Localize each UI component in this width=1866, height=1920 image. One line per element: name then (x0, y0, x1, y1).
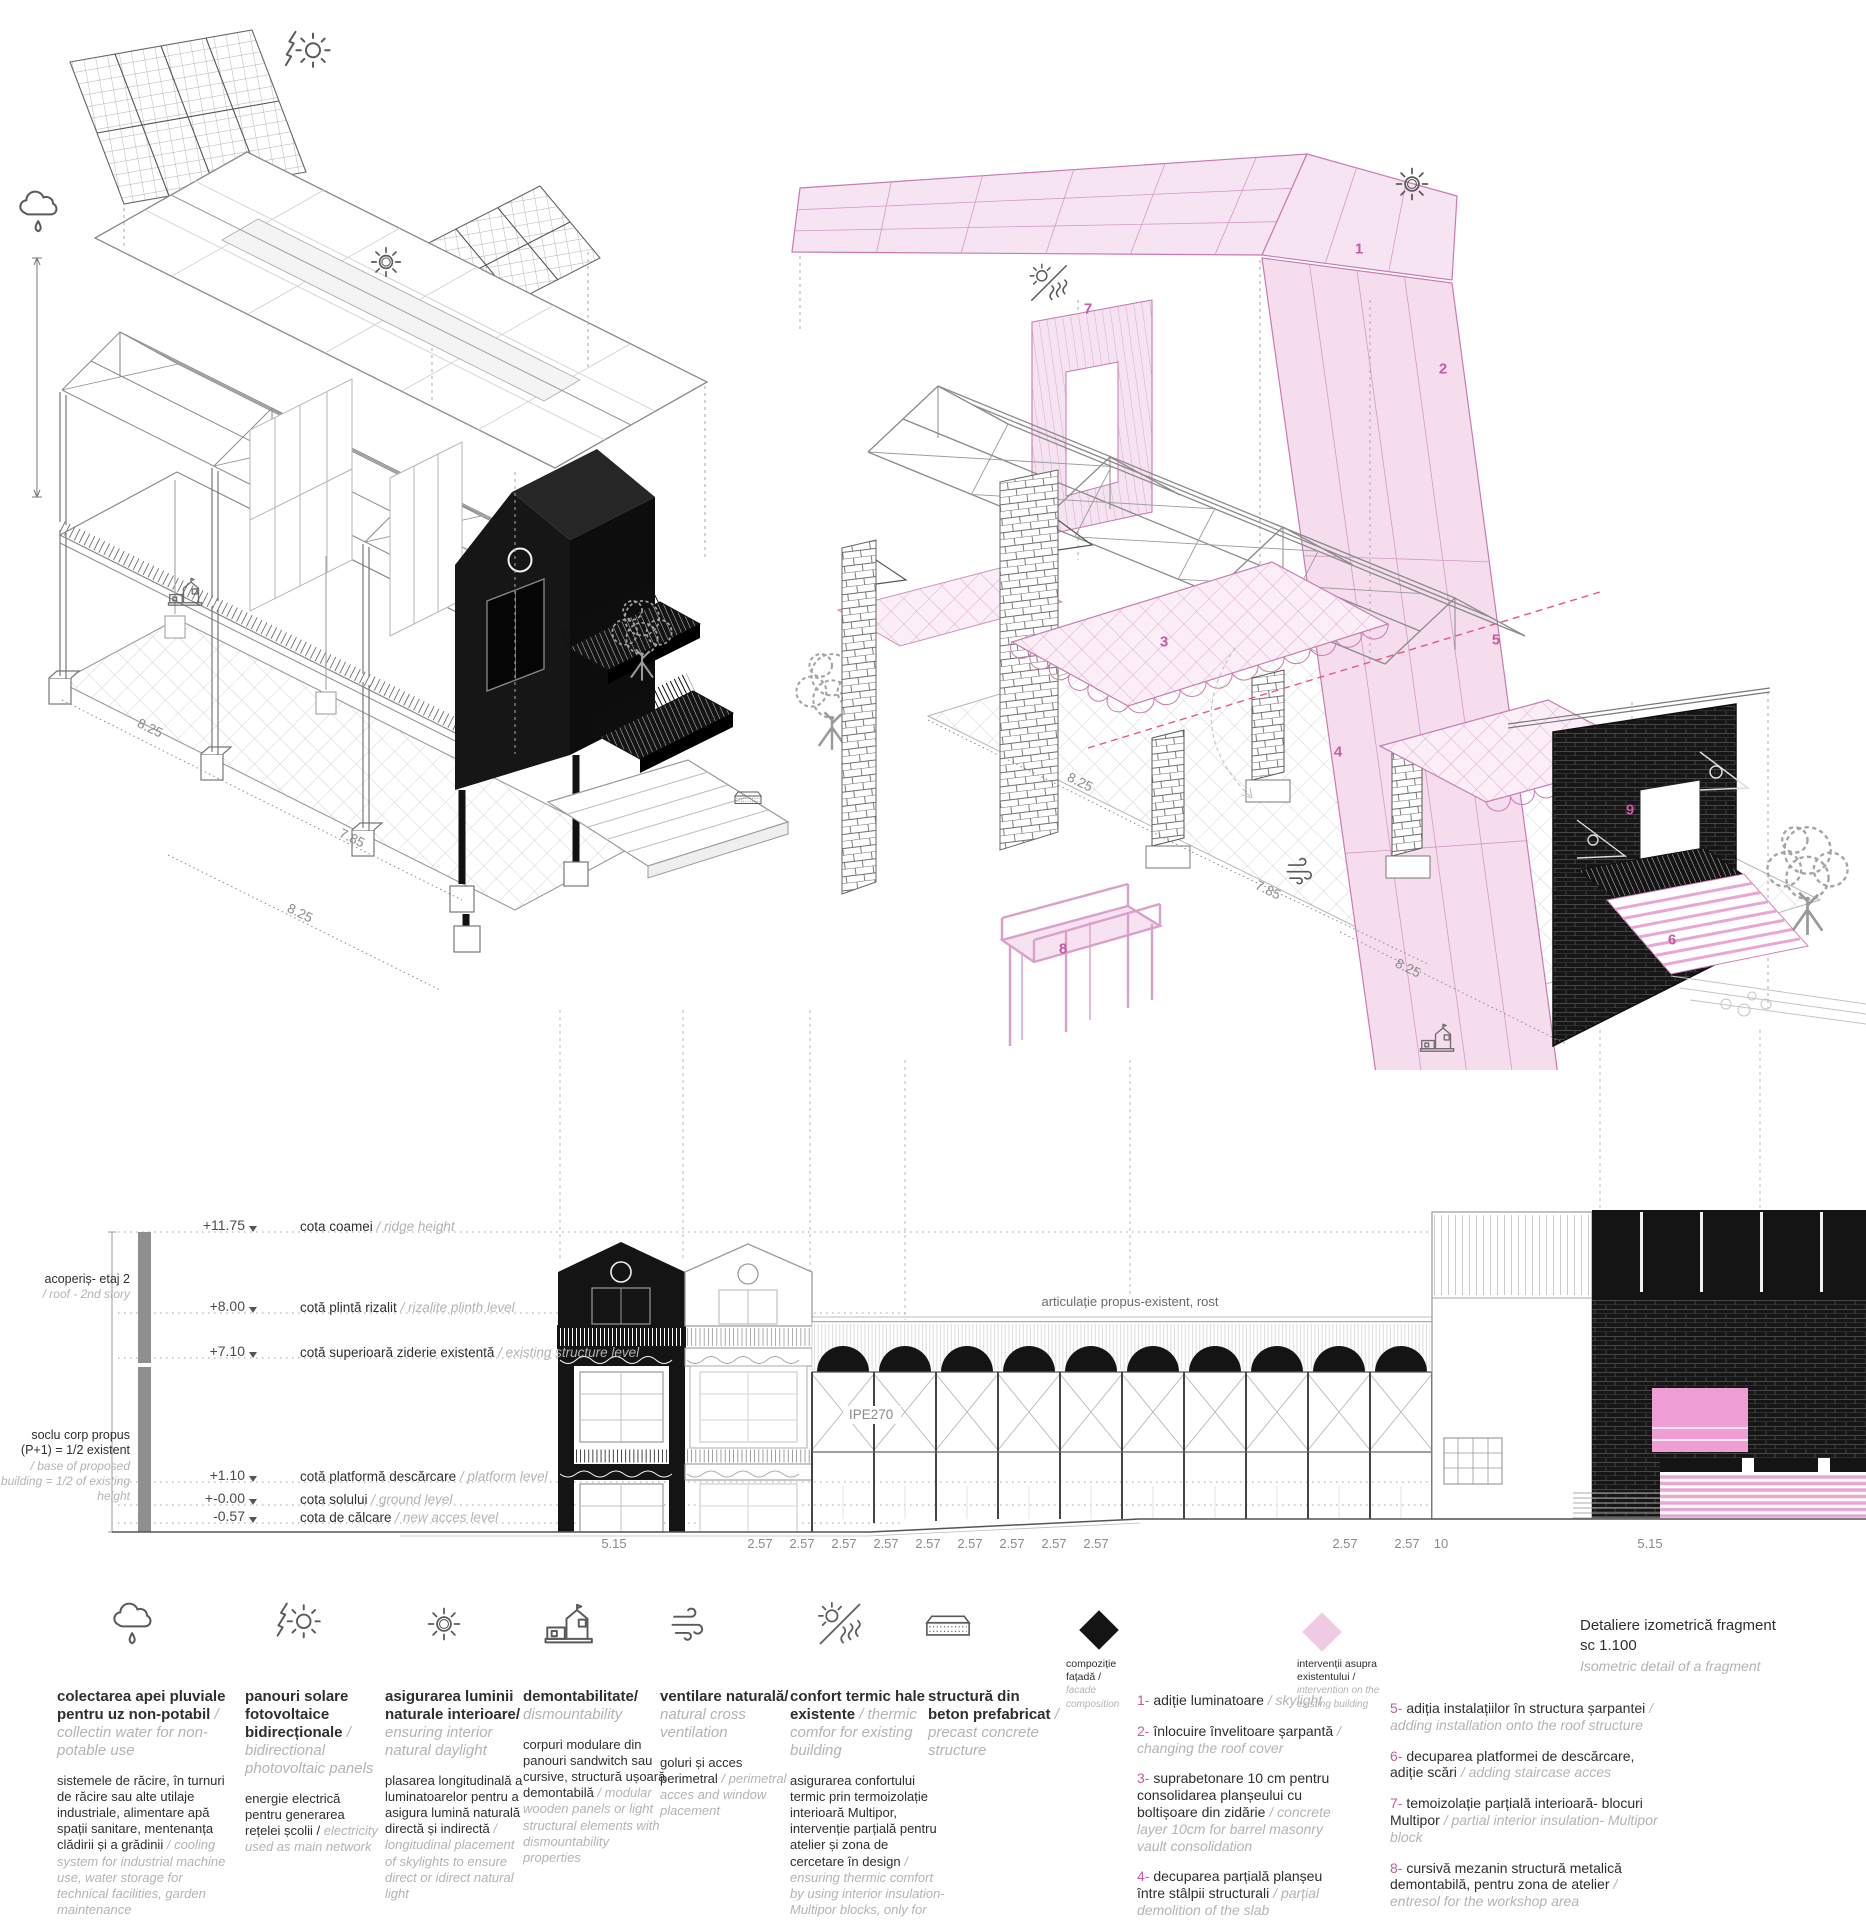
dim-label: 2.57 (1083, 1536, 1108, 1551)
intervention-number-5: 5 (1492, 632, 1500, 649)
intervention-number-7: 7 (1084, 301, 1092, 318)
left-isometric-drawing (0, 0, 900, 1010)
legend-item-rainwater: colectarea apei pluviale pentru uz non-p… (57, 1688, 227, 1918)
dim-label: 2.57 (957, 1536, 982, 1551)
drawing-scale: sc 1.100 (1580, 1636, 1860, 1656)
legend-item-daylight: asigurarea luminii naturale interioare/ … (385, 1688, 525, 1902)
legend-item-dismountability: demontabilitate/ dismountability corpuri… (523, 1688, 668, 1866)
intervention-item: 1- adiție luminatoare / skylight (1137, 1692, 1342, 1709)
bolt-sun-icon (270, 1596, 324, 1650)
dim-label: 5.15 (1637, 1536, 1662, 1551)
black-house-elevation (558, 1242, 685, 1532)
black-building-elevation (1573, 1210, 1866, 1519)
right-isometric-drawing (780, 90, 1866, 1070)
intervention-number-8: 8 (1059, 941, 1067, 958)
intervention-item: 7- temoizolație parțială interioară- blo… (1390, 1795, 1665, 1845)
thermal-sun-icon (1030, 264, 1066, 300)
hall-elevation (812, 1317, 1432, 1532)
intervention-number-4: 4 (1334, 744, 1342, 761)
intervention-number-1: 1 (1355, 241, 1363, 258)
intervention-number-3: 3 (1160, 634, 1168, 651)
dim-label: 2.57 (831, 1536, 856, 1551)
intervention-item: 4- decuparea parțială planșeu între stâl… (1137, 1868, 1342, 1918)
intervention-item: 2- înlocuire învelitoare șarpantă / chan… (1137, 1723, 1342, 1757)
level-markers (249, 1226, 257, 1523)
dim-label: 2.57 (999, 1536, 1024, 1551)
dim-label: 2.57 (1041, 1536, 1066, 1551)
wind-icon (666, 1598, 718, 1650)
thermal-sun-icon (814, 1598, 866, 1650)
house-icon (542, 1596, 598, 1652)
legend-item-precast: structură din beton prefabricat / precas… (928, 1688, 1063, 1773)
legend-item-photovoltaic: panouri solare fotovoltaice bidirecționa… (245, 1688, 380, 1855)
drawing-title-en: Isometric detail of a fragment (1580, 1657, 1860, 1676)
story-bar-base (138, 1367, 151, 1532)
story-label-roof: acoperiș- etaj 2 / roof - 2nd story (0, 1272, 130, 1303)
level-value: +7.10 (185, 1343, 245, 1359)
facade-composition-diamond (1079, 1610, 1119, 1650)
drawing-title-block: Detaliere izometrică fragment sc 1.100 I… (1580, 1616, 1860, 1675)
intervention-number-9: 9 (1626, 802, 1634, 819)
beam-label: IPE270 (846, 1407, 896, 1422)
dim-label: 2.57 (789, 1536, 814, 1551)
sun-icon (418, 1598, 470, 1650)
intervention-item: 3- suprabetonare 10 cm pentru consolidar… (1137, 1770, 1342, 1854)
bolt-sun-icon (286, 32, 330, 67)
rain-cloud-icon (106, 1596, 160, 1650)
pink-striped-base (1660, 1472, 1866, 1519)
pink-doorway (1652, 1388, 1748, 1452)
intervention-item: 6- decuparea platformei de descărcare, a… (1390, 1748, 1665, 1782)
level-label: cotă plintă rizalit / rizalite plinth le… (300, 1300, 515, 1315)
dim-label: 2.57 (747, 1536, 772, 1551)
intervention-diamond (1302, 1612, 1342, 1652)
level-value: +11.75 (185, 1217, 245, 1233)
joint-label: articulație propus-existent, rost (1020, 1294, 1240, 1309)
story-label-base: soclu corp propus (P+1) = 1/2 existent /… (0, 1428, 130, 1504)
intervention-number-2: 2 (1439, 361, 1447, 378)
architecture-sheet: +11.75 +8.00 +7.10 +1.10 +-0.00 -0.57 co… (0, 0, 1866, 1920)
rain-cloud-icon (20, 192, 56, 232)
dim-label: 5.15 (601, 1536, 626, 1551)
legend-item-thermal-comfort: confort termic hale existente / thermic … (790, 1688, 945, 1920)
masonry-piers (842, 470, 1092, 894)
height-dimension-line (32, 258, 42, 497)
level-label: cotă platformă descărcare / platform lev… (300, 1469, 548, 1484)
dim-label: 2.57 (915, 1536, 940, 1551)
dim-label: 10 (1434, 1536, 1448, 1551)
drawing-title: Detaliere izometrică fragment (1580, 1616, 1860, 1636)
level-value: +-0.00 (185, 1490, 245, 1506)
white-building-elevation (1432, 1212, 1592, 1519)
elevation-drawing (0, 990, 1866, 1580)
level-label: cota solului / ground level (300, 1492, 452, 1507)
level-label: cota de călcare / new acces level (300, 1510, 498, 1525)
level-value: -0.57 (185, 1508, 245, 1524)
pink-roof-1 (792, 154, 1457, 280)
level-value: +8.00 (185, 1298, 245, 1314)
intervention-item: 5- adiția instalațiilor în structura șar… (1390, 1700, 1665, 1734)
level-label: cota coamei / ridge height (300, 1219, 455, 1234)
dim-label: 2.57 (873, 1536, 898, 1551)
slab-icon (922, 1600, 974, 1652)
interventions-list-1: 1- adiție luminatoare / skylight 2- înlo… (1137, 1692, 1342, 1920)
dim-label: 2.57 (1394, 1536, 1419, 1551)
white-house-elevation (685, 1244, 812, 1532)
level-label: cotă superioară ziderie existentă / exis… (300, 1345, 639, 1360)
interventions-list-2: 5- adiția instalațiilor în structura șar… (1390, 1700, 1665, 1920)
level-value: +1.10 (185, 1467, 245, 1483)
dim-label: 2.57 (1332, 1536, 1357, 1551)
intervention-number-6: 6 (1668, 932, 1676, 949)
story-bar-roof (138, 1232, 151, 1363)
facade-composition-label: compoziție fațadă / facade composition (1066, 1658, 1140, 1711)
legend-item-ventilation: ventilare naturală/ natural cross ventil… (660, 1688, 790, 1819)
intervention-item: 8- cursivă mezanin structură metalică de… (1390, 1860, 1665, 1910)
roof-plane (95, 152, 707, 468)
